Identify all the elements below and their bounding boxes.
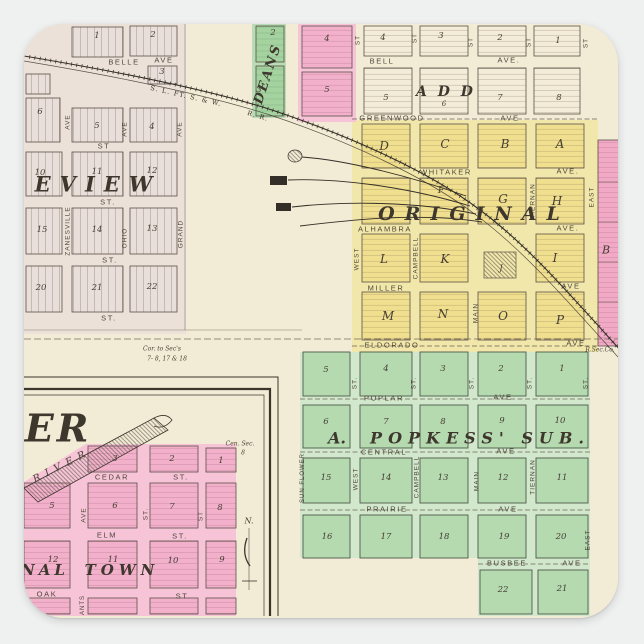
map-label-8: 8 — [217, 503, 222, 513]
map-label-21: 21 — [557, 584, 568, 594]
map-label-p: P — [556, 313, 564, 327]
north-indicator-label: N. — [244, 517, 253, 526]
map-label-main: MAIN — [474, 471, 481, 491]
map-label-ave: AVE — [561, 282, 580, 291]
map-label-3: 3 — [438, 31, 443, 41]
map-label-ave: AVE — [122, 121, 129, 137]
map-label-st: ST — [98, 142, 111, 151]
map-label-13: 13 — [438, 473, 449, 483]
map-label-16: 16 — [322, 532, 333, 542]
map-label-4: 4 — [149, 122, 154, 132]
addition-name-a: A. — [328, 429, 346, 448]
map-label-8: 8 — [241, 450, 245, 457]
addition-name-eview: EVIEW — [35, 172, 162, 197]
railroad-name-rr: R. R. — [246, 109, 269, 123]
street-zanesville: ZANESVILLE — [65, 206, 72, 255]
street-miller: MILLER — [368, 284, 405, 293]
inset-title-fragment-er: ER — [25, 406, 92, 451]
map-label-b: B — [501, 137, 510, 151]
map-label-4: 4 — [380, 33, 385, 43]
map-label-st: ST — [468, 37, 475, 47]
map-label-st: ST. — [101, 314, 117, 323]
street-grand: GRAND — [178, 220, 185, 248]
map-label-ave: AVE — [65, 114, 72, 130]
map-label-st: ST — [583, 38, 590, 48]
map-label-15: 15 — [37, 225, 48, 235]
map-label-st: ST. — [411, 377, 418, 389]
map-label-cen-sec: Cen. Sec. — [226, 441, 255, 448]
street-oak: OAK — [37, 590, 58, 599]
map-label-cor-to-sec-s: Cor. to Sec's — [143, 346, 181, 353]
street-whitaker: WHITAKER — [420, 168, 472, 177]
map-label-5: 5 — [383, 93, 388, 103]
map-label-6: 6 — [37, 107, 42, 117]
map-label-ave: AVE — [498, 505, 517, 514]
product-photo-stage: 12BELLEAVE3654AVEAVEAVEST101112EVIEWST.Z… — [0, 0, 644, 644]
street-bell: BELL — [370, 57, 395, 66]
addition-name-original: ORIGINAL — [378, 203, 570, 225]
map-label-21: 21 — [92, 283, 103, 293]
map-label-2: 2 — [497, 33, 502, 43]
addition-name-deans: DEANS — [251, 42, 285, 106]
street-eldorado: ELDORADO — [365, 341, 420, 350]
map-label-st: ST. — [172, 532, 188, 541]
map-label-st: ST — [176, 592, 189, 601]
map-label-7: 7 — [497, 93, 502, 103]
street-elm: ELM — [97, 531, 117, 540]
map-label-7: 7 — [383, 417, 388, 427]
addition-name-popkess-sub: POPKESS' SUB. — [370, 429, 590, 448]
map-label-17: 17 — [381, 532, 392, 542]
map-label-st: ST. — [583, 377, 590, 389]
map-label-st: ST. — [102, 256, 118, 265]
map-label-j: J — [499, 264, 502, 273]
map-label-st: ST. — [100, 198, 116, 207]
map-label-campbell: CAMPBELL — [414, 456, 421, 499]
map-label-22: 22 — [498, 585, 509, 595]
map-label-7-8-17-18: 7- 8, 17 & 18 — [147, 356, 187, 363]
street-prairie: PRAIRIE — [366, 505, 407, 514]
street-central: CENTRAL — [361, 448, 407, 457]
map-label-b: B — [602, 244, 610, 257]
map-label-1: 1 — [218, 456, 223, 466]
map-label-ave: AVE. — [557, 224, 580, 233]
map-label-c: C — [440, 137, 449, 151]
map-label-n: N — [438, 307, 449, 321]
map-label-9: 9 — [219, 555, 224, 565]
map-label-19: 19 — [499, 532, 510, 542]
map-label-st: ST — [526, 37, 533, 47]
river-label: RIVER — [31, 447, 93, 486]
map-label-st: ST. — [173, 473, 189, 482]
street-sun-flower: SUN FLOWER — [300, 453, 306, 503]
map-label-8: 8 — [556, 93, 561, 103]
map-label-st: ST. — [352, 377, 359, 389]
map-label-5: 5 — [94, 121, 99, 131]
street-poplar: POPLAR — [364, 394, 404, 403]
map-label-1: 1 — [559, 364, 564, 374]
map-label-2: 2 — [169, 454, 174, 464]
map-label-i: I — [553, 251, 558, 265]
map-label-20: 20 — [556, 532, 567, 542]
map-label-ave: AVE — [177, 121, 184, 137]
map-label-ave: AVE — [493, 393, 512, 402]
map-label-4: 4 — [324, 34, 329, 44]
map-label-7: 7 — [169, 502, 174, 512]
map-label-tiernan: TIERNAN — [530, 459, 537, 495]
inset-name-nal: NAL — [24, 561, 69, 579]
map-label-13: 13 — [147, 224, 158, 234]
street-campbell: CAMPBELL — [413, 237, 420, 280]
map-label-st: ST — [355, 35, 362, 45]
map-label-3: 3 — [440, 364, 445, 374]
map-label-ave: AVE — [500, 114, 519, 123]
map-label-8: 8 — [440, 417, 445, 427]
map-label-ave: AVE — [154, 56, 173, 65]
map-label-20: 20 — [36, 283, 47, 293]
map-label-11: 11 — [557, 473, 568, 483]
map-label-d: D — [379, 139, 389, 153]
map-label-18: 18 — [439, 532, 450, 542]
square-sticker: 12BELLEAVE3654AVEAVEAVEST101112EVIEWST.Z… — [24, 24, 618, 618]
map-label-5: 5 — [324, 85, 329, 95]
street-ohio: OHIO — [122, 228, 129, 249]
map-label-k: K — [441, 252, 450, 266]
map-labels-layer: 12BELLEAVE3654AVEAVEAVEST101112EVIEWST.Z… — [24, 24, 618, 618]
map-label-2: 2 — [150, 30, 155, 40]
street-cedar: CEDAR — [95, 473, 129, 482]
map-label-st: ST. — [143, 508, 150, 520]
street-east: EAST — [589, 187, 596, 208]
map-label-3: 3 — [112, 454, 117, 464]
street-busbee: BUSBEE — [487, 559, 527, 568]
map-label-a: A — [556, 137, 565, 151]
map-label-3: 3 — [256, 85, 261, 95]
map-label-4: 4 — [383, 364, 388, 374]
map-label-5: 5 — [323, 365, 328, 375]
map-label-2: 2 — [498, 364, 503, 374]
street-west: WEST — [354, 248, 361, 271]
map-label-9: 9 — [499, 416, 504, 426]
map-label-ave: AVE. — [498, 56, 521, 65]
map-label-ave: AVE — [81, 507, 88, 523]
map-label-10: 10 — [168, 556, 179, 566]
map-label-2: 2 — [270, 28, 275, 38]
inset-name-town: TOWN — [85, 561, 160, 579]
map-label-l: L — [380, 252, 388, 266]
map-label-6: 6 — [112, 501, 117, 511]
map-label-22: 22 — [147, 282, 158, 292]
map-label-west: WEST — [353, 468, 360, 491]
street-main: MAIN — [473, 303, 480, 323]
map-label-14: 14 — [92, 225, 103, 235]
map-label-3: 3 — [159, 67, 164, 77]
map-label-1: 1 — [94, 31, 99, 41]
addition-name-add: A D D — [416, 84, 476, 100]
map-label-ave: AVE — [566, 339, 585, 348]
map-label-r-sec-co: R.Sec.Co. — [585, 347, 614, 354]
railroad-name: S. L. FT. S. & W. — [150, 84, 223, 108]
map-label-st: ST. — [527, 377, 534, 389]
map-label-ave: AVE. — [557, 167, 580, 176]
map-label-o: O — [498, 309, 508, 323]
map-label-1: 1 — [555, 36, 560, 46]
street-ants-fragment: ANTS — [80, 595, 86, 615]
street-alhambra: ALHAMBRA — [358, 225, 412, 234]
map-label-10: 10 — [555, 416, 566, 426]
street-belle: BELLE — [108, 58, 139, 67]
street-greenwood: GREENWOOD — [359, 114, 424, 123]
map-label-st: ST — [412, 33, 419, 43]
map-label-ave: AVE — [496, 447, 515, 456]
map-label-m: M — [382, 309, 394, 323]
map-label-14: 14 — [381, 473, 392, 483]
map-label-15: 15 — [321, 473, 332, 483]
map-label-st: ST. — [469, 377, 476, 389]
map-label-6: 6 — [323, 417, 328, 427]
map-label-east: EAST — [585, 530, 592, 551]
map-label-5: 5 — [49, 501, 54, 511]
map-label-6: 6 — [442, 100, 446, 108]
map-label-ave: AVE — [562, 559, 581, 568]
map-label-st: ST — [198, 511, 205, 521]
map-label-f: F — [438, 186, 444, 196]
map-label-12: 12 — [498, 473, 509, 483]
